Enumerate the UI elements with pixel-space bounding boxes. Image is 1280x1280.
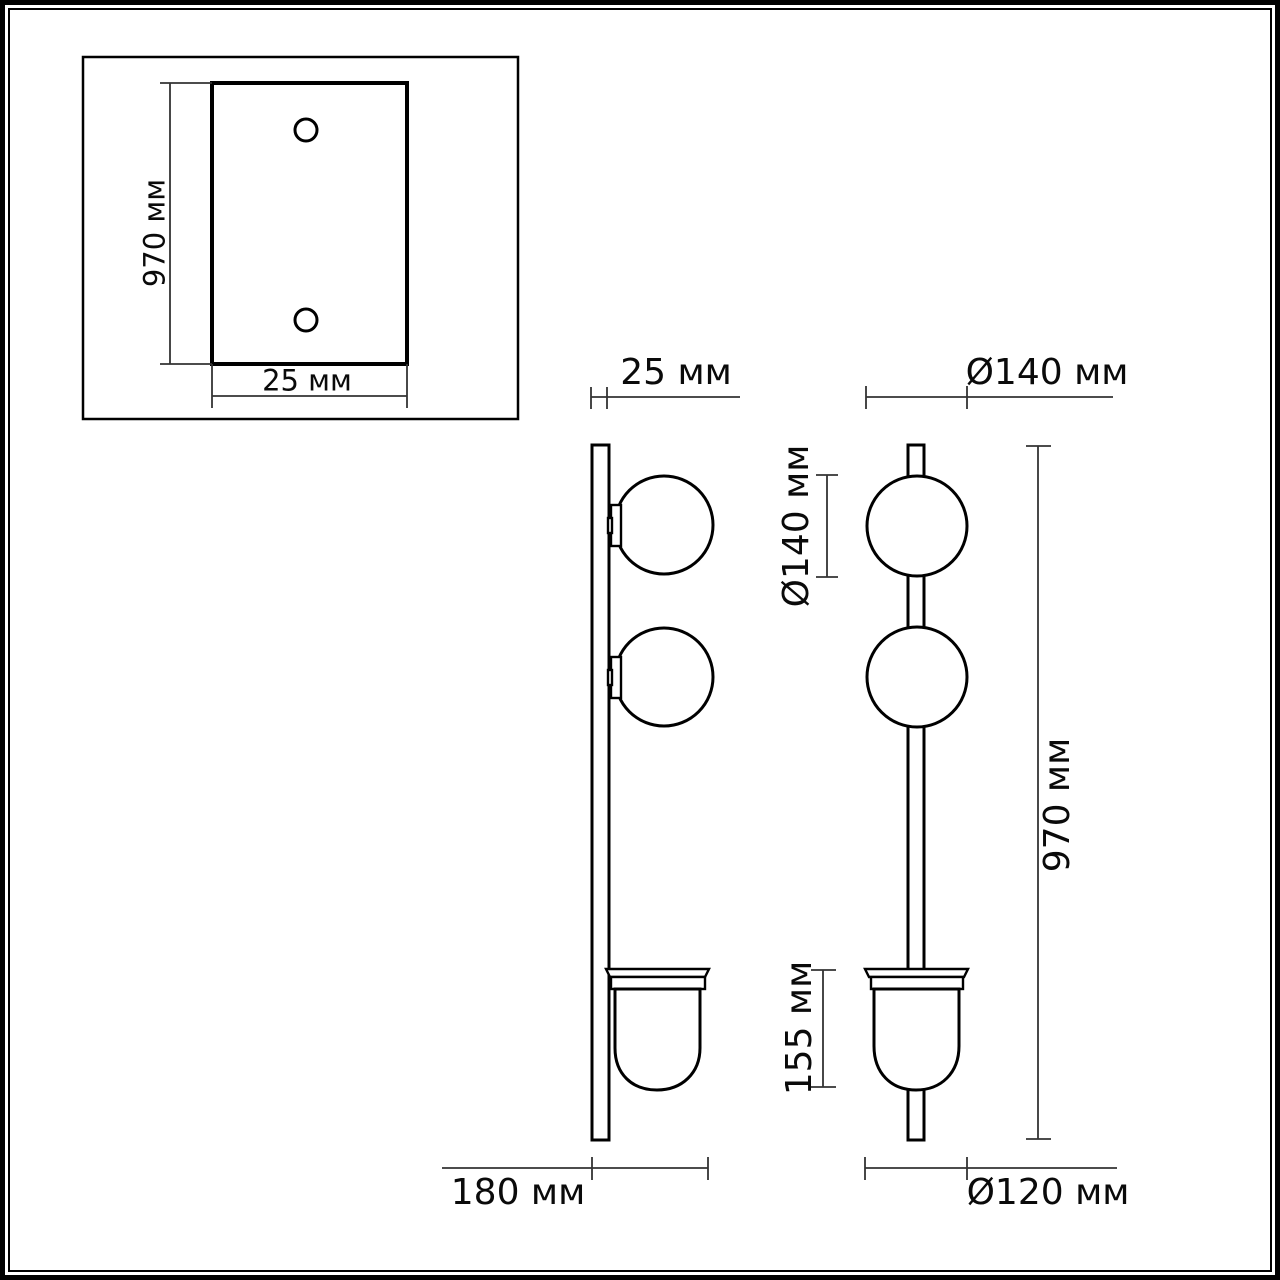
mounting-hole-top bbox=[295, 119, 317, 141]
sphere-shade-upper-front bbox=[867, 476, 967, 576]
bracket-nub-upper bbox=[608, 518, 612, 533]
front-overall-height-label: 970 мм bbox=[1040, 738, 1076, 872]
cup-holder-band-side bbox=[611, 977, 705, 989]
sphere-shade-upper-side bbox=[615, 476, 713, 574]
cup-holder-band-front bbox=[871, 977, 963, 989]
bracket-nub-lower bbox=[608, 670, 612, 685]
lamp-dimension-diagram: 970 мм 25 мм 25 мм 180 мм Ø140 мм Ø140 м… bbox=[0, 0, 1280, 1280]
sphere-shade-lower-front bbox=[867, 627, 967, 727]
front-sphere-diameter-vertical-label: Ø140 мм bbox=[779, 445, 815, 608]
cup-holder-disc-side bbox=[606, 969, 709, 977]
cup-shade-front bbox=[874, 989, 959, 1090]
side-bar-width-label: 25 мм bbox=[620, 355, 732, 391]
cup-shade-side bbox=[615, 989, 700, 1090]
sphere-shade-lower-side bbox=[615, 628, 713, 726]
mounting-hole-bottom bbox=[295, 309, 317, 331]
front-sphere-diameter-top-label: Ø140 мм bbox=[966, 355, 1129, 391]
inset-width-label: 25 мм bbox=[262, 367, 352, 396]
front-shade-height-label: 155 мм bbox=[782, 961, 818, 1095]
inset-height-label: 970 мм bbox=[141, 179, 170, 287]
front-shade-diameter-label: Ø120 мм bbox=[967, 1175, 1130, 1211]
wall-bar-side bbox=[592, 445, 609, 1140]
side-depth-label: 180 мм bbox=[451, 1175, 585, 1211]
drawing-canvas bbox=[0, 0, 1280, 1280]
lamp-side-view bbox=[442, 387, 740, 1180]
cup-holder-disc-front bbox=[865, 969, 968, 977]
